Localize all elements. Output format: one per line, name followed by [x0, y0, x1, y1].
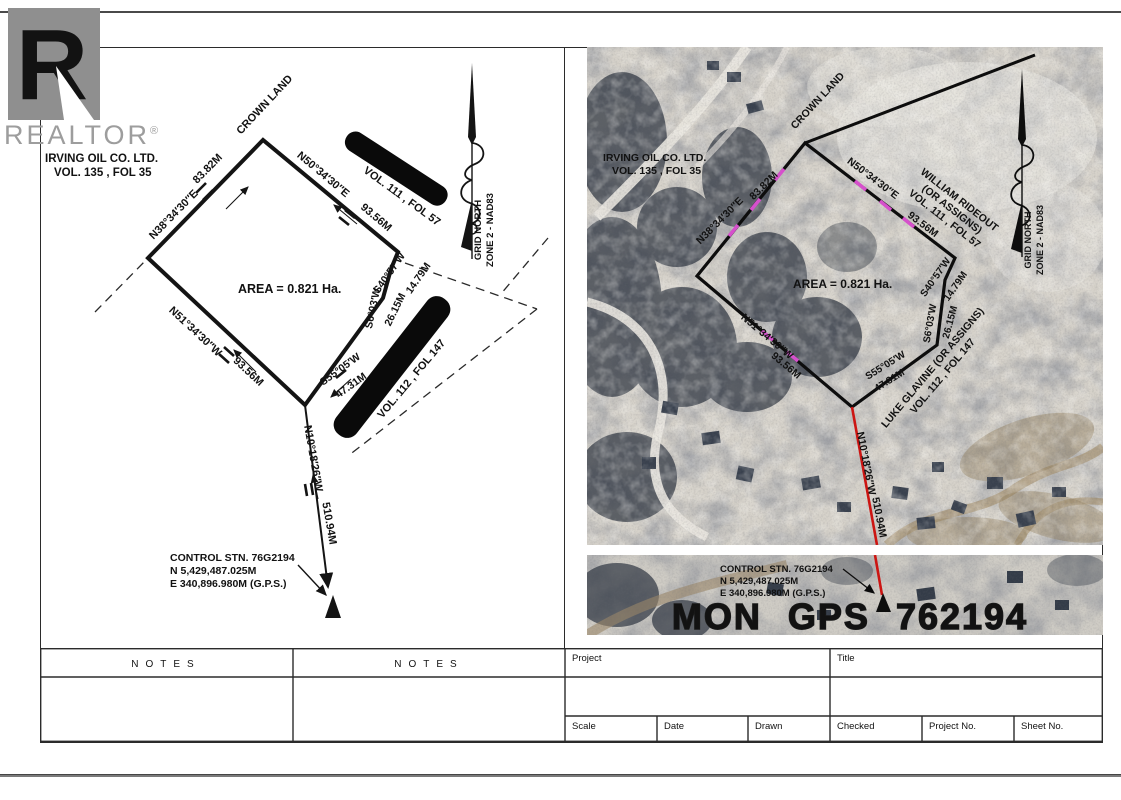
project-no-field-label: Project No. — [929, 721, 976, 732]
title-field-label: Title — [837, 653, 855, 664]
survey-drawing-panel: GRID NORTH ZONE 2 - NAD83 IRVING OIL CO.… — [40, 47, 565, 648]
distance-s6: 26.15M — [382, 291, 408, 328]
checked-field-label: Checked — [837, 721, 875, 732]
bearing-n10: N10°18′26″W — [301, 424, 325, 493]
aerial-photo-strip: CONTROL STN. 76G2194 N 5,429,487.025M E … — [587, 555, 1103, 635]
photo-texture — [587, 47, 1103, 545]
north-arrow-label-2: ZONE 2 - NAD83 — [485, 193, 496, 267]
project-field-label: Project — [572, 653, 602, 664]
area-label: AREA = 0.821 Ha. — [238, 282, 341, 296]
bearing-s6: S6°03′W — [363, 287, 383, 330]
scale-field-label: Scale — [572, 721, 596, 732]
distance-n50: 93.56M — [358, 201, 394, 234]
bottom-rule-line — [0, 774, 1121, 777]
notes-header-right: NOTES — [394, 659, 463, 670]
distance-n51: 93.56M — [231, 355, 266, 389]
owner-nw-label-2: VOL. 135 , FOL 35 — [54, 167, 152, 179]
control-station-triangle-icon — [325, 595, 341, 618]
survey-plan-sheet: R REALTOR® — [0, 0, 1121, 800]
strip-control-label-1: CONTROL STN. 76G2194 — [720, 564, 834, 575]
sheet-no-field-label: Sheet No. — [1021, 721, 1063, 732]
distance-n38: 83.82M — [191, 152, 225, 187]
owner-nw-label-1: IRVING OIL CO. LTD. — [45, 153, 158, 165]
notes-header-left: NOTES — [131, 659, 200, 670]
mon-gps-monument-label: MON GPS 762194 — [672, 596, 1028, 635]
drawn-field-label: Drawn — [755, 721, 782, 732]
crown-land-label: CROWN LAND — [234, 73, 295, 137]
top-rule-line — [0, 11, 1121, 13]
control-leader-line — [298, 565, 326, 595]
north-arrow-label-1: GRID NORTH — [473, 200, 484, 260]
bearing-n51: N51°34′30″W — [166, 304, 224, 359]
date-field-label: Date — [664, 721, 684, 732]
photo-area-label: AREA = 0.821 Ha. — [793, 277, 892, 291]
distance-s40: 14.79M — [404, 260, 434, 296]
control-station-label-3: E 340,896.980M (G.P.S.) — [170, 578, 287, 590]
photo-north-arrow-label-2: ZONE 2 - NAD83 — [1035, 205, 1045, 275]
aerial-photo: GRID NORTH ZONE 2 - NAD83 IRVING OIL CO.… — [587, 47, 1103, 545]
control-station-label-2: N 5,429,487.025M — [170, 565, 257, 577]
photo-north-arrow-label-1: GRID NORTH — [1023, 212, 1033, 269]
parcel-boundary — [148, 140, 398, 405]
title-block: NOTES NOTES Project Title Scale Date Dra… — [40, 648, 1103, 742]
strip-control-label-2: N 5,429,487.025M — [720, 576, 798, 587]
photo-owner-nw-label-1: IRVING OIL CO. LTD. — [603, 152, 706, 164]
control-station-label-1: CONTROL STN. 76G2194 — [170, 552, 295, 564]
photo-owner-nw-label-2: VOL. 135 , FOL 35 — [612, 165, 701, 177]
bearing-arrows — [196, 183, 357, 499]
